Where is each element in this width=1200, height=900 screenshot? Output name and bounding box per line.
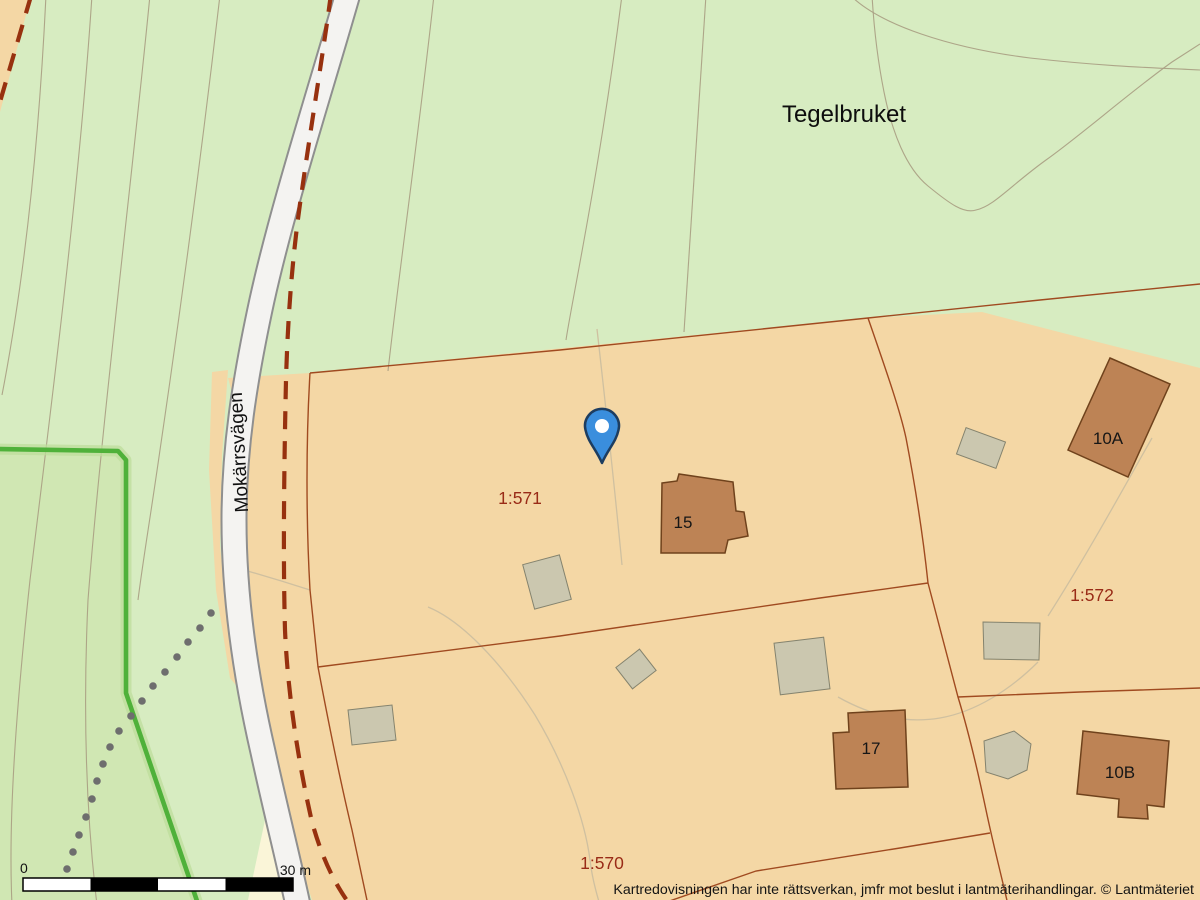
building-label-10a: 10A xyxy=(1093,429,1124,448)
outbuilding xyxy=(983,622,1040,660)
outbuilding xyxy=(984,731,1031,779)
place-label: Tegelbruket xyxy=(782,101,906,128)
parcel-label-572: 1:572 xyxy=(1070,585,1114,605)
outbuilding xyxy=(348,705,396,745)
map-canvas[interactable]: 15 17 10A 10B 1:571 1:572 1:570 Tegelbru… xyxy=(0,0,1200,900)
outbuilding xyxy=(774,637,830,695)
building-label-15: 15 xyxy=(674,513,693,532)
scale-start-label: 0 xyxy=(20,860,28,876)
building-label-17: 17 xyxy=(862,739,881,758)
parcel-label-570: 1:570 xyxy=(580,853,624,873)
parcel-label-571: 1:571 xyxy=(498,488,542,508)
attribution-text: Kartredovisningen har inte rättsverkan, … xyxy=(613,882,1194,898)
scale-end-label: 30 m xyxy=(280,862,311,878)
building-label-10b: 10B xyxy=(1105,763,1135,782)
